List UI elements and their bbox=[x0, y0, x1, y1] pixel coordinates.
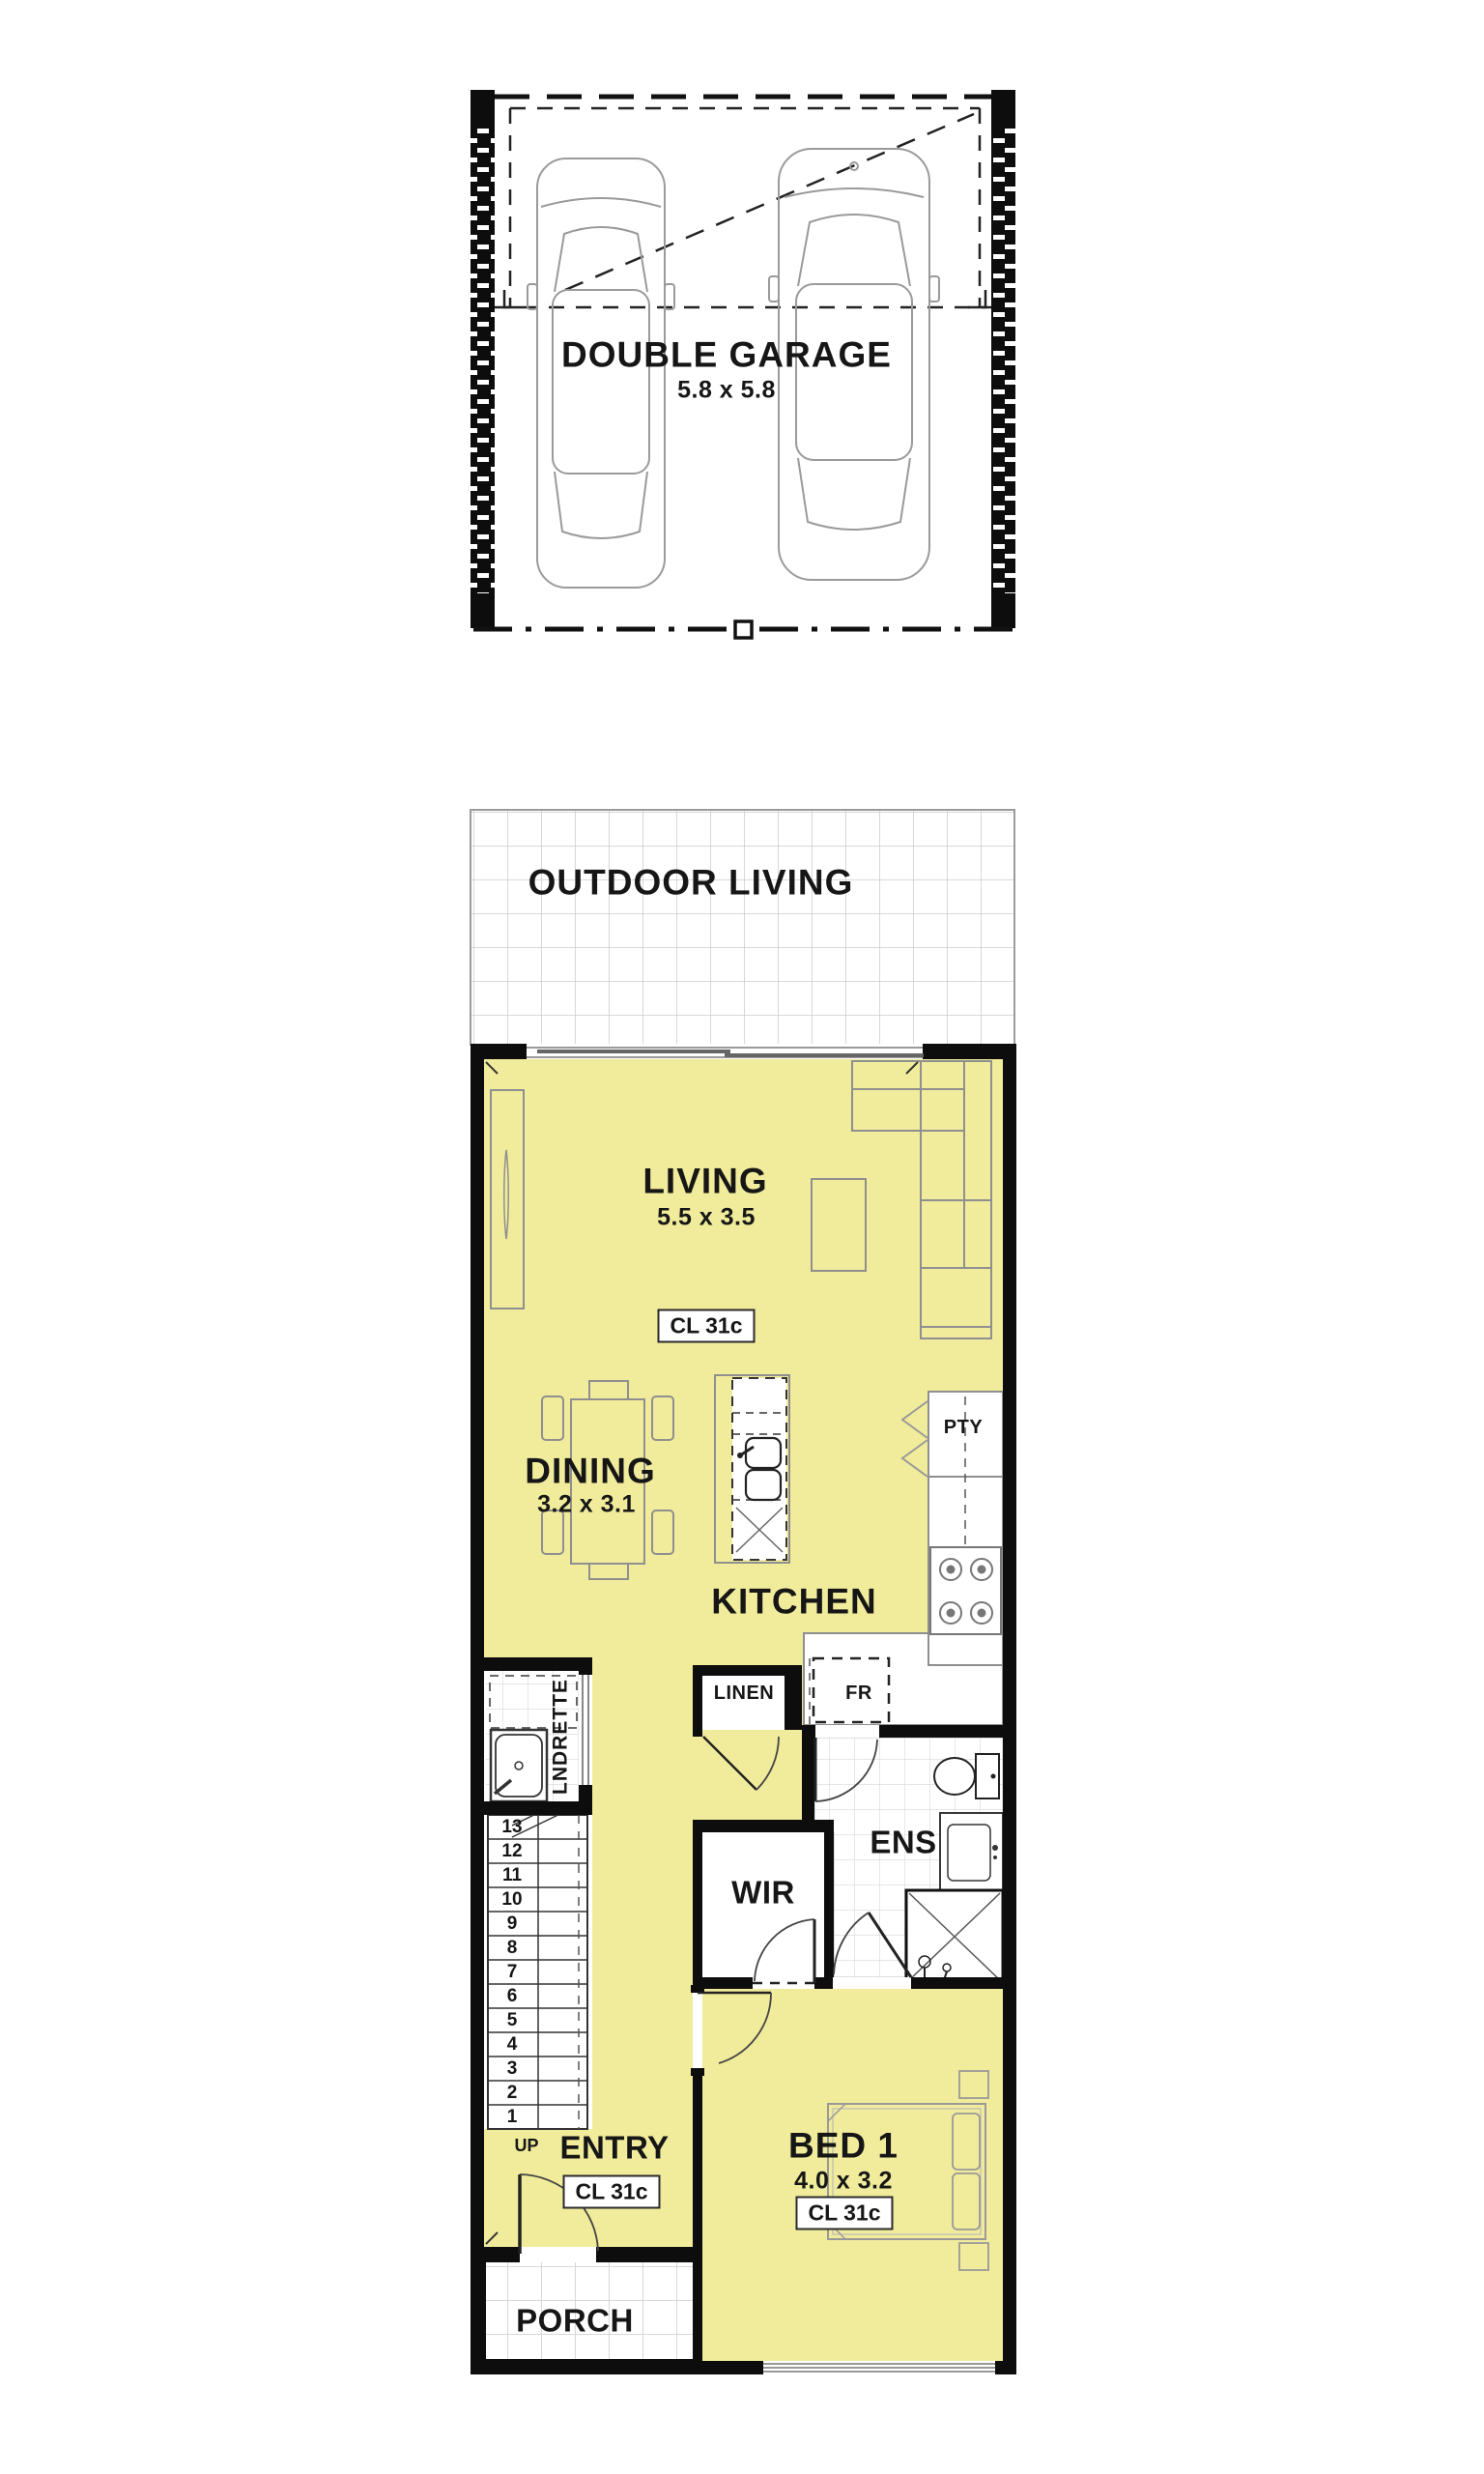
living-ceiling-tag: CL 31c bbox=[657, 1309, 755, 1343]
up-label: UP bbox=[514, 2137, 538, 2154]
garage-label: DOUBLE GARAGE bbox=[561, 337, 892, 373]
stair-tread-number: 6 bbox=[488, 1984, 536, 2008]
stair-tread-number: 8 bbox=[488, 1936, 536, 1960]
stair-tread-number: 13 bbox=[488, 1815, 536, 1839]
stair-tread-number: 11 bbox=[488, 1863, 536, 1887]
dining-dims: 3.2 x 3.1 bbox=[537, 1493, 636, 1517]
bed1-ceiling-tag: CL 31c bbox=[795, 2197, 893, 2230]
garage-door-swing-diagonal bbox=[565, 114, 974, 290]
vanity-icon bbox=[940, 1813, 1003, 1892]
laundrette-label: LNDRETTE bbox=[551, 1679, 571, 1795]
stair-tread-number: 2 bbox=[488, 2081, 536, 2105]
bed1-dims: 4.0 x 3.2 bbox=[794, 2170, 893, 2194]
stove-icon bbox=[930, 1547, 1001, 1634]
stair-numbers: 13 12 11 10 9 8 7 6 5 4 3 2 1 bbox=[488, 1815, 536, 2129]
outdoor-living-deck bbox=[471, 810, 1014, 1045]
garage-dims: 5.8 x 5.8 bbox=[677, 379, 776, 403]
living-dims: 5.5 x 3.5 bbox=[657, 1206, 756, 1230]
sliding-door-panel bbox=[725, 1053, 924, 1057]
toilet-icon bbox=[934, 1754, 999, 1798]
shower-icon bbox=[906, 1890, 1003, 1983]
stair-tread-number: 12 bbox=[488, 1839, 536, 1863]
living-label: LIVING bbox=[642, 1164, 767, 1199]
garage-door-panel-dashed bbox=[495, 108, 991, 307]
wir-label: WIR bbox=[731, 1877, 795, 1909]
stair-tread-number: 10 bbox=[488, 1887, 536, 1912]
outdoor-living-label: OUTDOOR LIVING bbox=[528, 865, 854, 901]
stair-tread-number: 7 bbox=[488, 1960, 536, 1984]
stair-tread-number: 9 bbox=[488, 1912, 536, 1936]
garage-left-wall bbox=[471, 90, 495, 628]
kitchen-label: KITCHEN bbox=[711, 1584, 876, 1620]
meter-box-icon bbox=[735, 621, 752, 638]
linen-label: LINEN bbox=[714, 1683, 775, 1703]
stair-tread-number: 1 bbox=[488, 2105, 536, 2129]
sliding-door-panel bbox=[537, 1050, 730, 1053]
bed1-label: BED 1 bbox=[788, 2128, 899, 2164]
fridge-label: FR bbox=[845, 1683, 872, 1703]
dining-label: DINING bbox=[525, 1453, 656, 1489]
garage-right-wall bbox=[991, 90, 1015, 628]
entry-label: ENTRY bbox=[559, 2132, 669, 2164]
entry-ceiling-tag: CL 31c bbox=[562, 2175, 660, 2209]
stair-tread-number: 3 bbox=[488, 2057, 536, 2081]
ensuite-label: ENS bbox=[870, 1827, 936, 1858]
stair-tread-number: 4 bbox=[488, 2032, 536, 2057]
porch-label: PORCH bbox=[516, 2305, 634, 2337]
stair-tread-number: 5 bbox=[488, 2008, 536, 2032]
floorplan-page: DOUBLE GARAGE 5.8 x 5.8 OUTDOOR LIVING L… bbox=[0, 0, 1484, 2474]
pantry-label: PTY bbox=[944, 1418, 983, 1437]
